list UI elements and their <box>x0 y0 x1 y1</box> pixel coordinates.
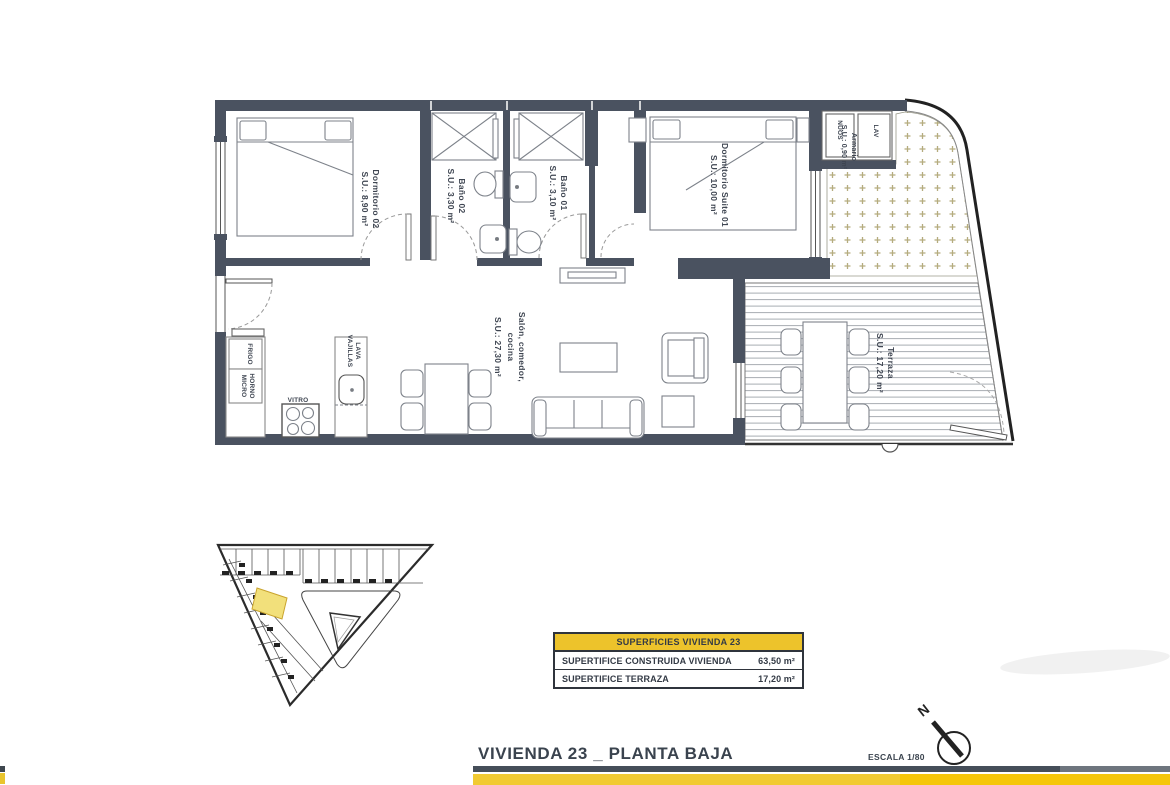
room-area-terraza: S.U.: 17,20 m² <box>875 333 885 393</box>
footer-bar-yellow-bright <box>900 774 1170 785</box>
room-area-bano02: S.U.: 3,30 m² <box>446 169 456 224</box>
scan-smudge <box>999 645 1170 679</box>
room-label-suite01: Dormitorio Suite 01 <box>720 143 730 227</box>
room-label-armario: Armario <box>850 133 857 161</box>
window-dorm02 <box>213 142 228 234</box>
table-row: SUPERTIFICE TERRAZA 17,20 m² <box>555 669 802 687</box>
window-suite <box>811 171 820 257</box>
room-label-salon-line1: Salón, comedor, <box>517 312 527 382</box>
room-area-dormitorio02: S.U.: 8,90 m² <box>360 172 370 227</box>
row-label: SUPERTIFICE TERRAZA <box>562 674 669 684</box>
row-value: 17,20 m² <box>758 674 795 684</box>
north-compass-icon: N <box>900 695 980 770</box>
label-lava: LAVA <box>354 342 361 360</box>
north-letter: N <box>914 701 932 720</box>
room-label-bano02: Baño 02 <box>457 178 467 213</box>
room-label-terraza: Terraza <box>886 347 896 379</box>
left-edge-mark-dark <box>0 766 5 772</box>
room-area-suite01: S.U.: 10,00 m² <box>709 155 719 215</box>
row-value: 63,50 m² <box>758 656 795 666</box>
label-vitro: VITRO <box>288 397 309 404</box>
footer-rule-dark-light <box>1060 766 1170 772</box>
footer-bar-yellow <box>473 774 900 785</box>
sheet-title: VIVIENDA 23 _ PLANTA BAJA <box>478 744 733 764</box>
footer-rule-dark <box>473 766 1060 772</box>
floorplan-sheet: Dormitorio 02 S.U.: 8,90 m² Baño 02 S.U.… <box>0 0 1170 785</box>
room-area-bano01: S.U.: 3,10 m² <box>548 166 558 221</box>
label-horno: HORNO <box>248 373 255 398</box>
sliding-door-terrace <box>736 363 741 418</box>
room-label-dormitorio02: Dormitorio 02 <box>371 169 381 228</box>
label-nuos: NUOS <box>836 120 843 140</box>
room-area-salon: S.U.: 27,30 m² <box>493 317 503 377</box>
room-label-salon-line2: cocina <box>506 333 516 362</box>
site-key-plan <box>195 535 445 720</box>
label-lav: LAV <box>872 124 879 138</box>
table-header: SUPERFICIES VIVIENDA 23 <box>555 634 802 652</box>
surface-summary-table: SUPERFICIES VIVIENDA 23 SUPERTIFICE CONS… <box>553 632 804 689</box>
room-label-bano01: Baño 01 <box>559 175 569 210</box>
label-vajillas: VAJILLAS <box>346 335 353 368</box>
table-row: SUPERTIFICE CONSTRUIDA VIVIENDA 63,50 m² <box>555 652 802 669</box>
left-edge-mark-yellow <box>0 773 5 784</box>
terrace-drain-arc <box>882 444 898 452</box>
row-label: SUPERTIFICE CONSTRUIDA VIVIENDA <box>562 656 732 666</box>
label-micro: MICRO <box>240 375 247 398</box>
label-frigo: FRIGO <box>246 343 253 365</box>
entry-door <box>213 276 272 332</box>
